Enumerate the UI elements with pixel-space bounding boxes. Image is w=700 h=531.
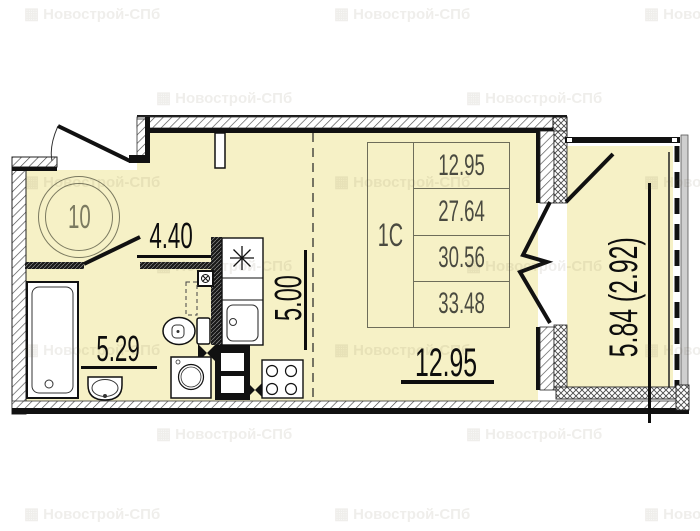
wall-stub [215,133,225,168]
balcony-area-label: 5.84 (2.92) [605,159,645,435]
floorplan-drawing [0,0,700,531]
unit-number-circle: 10 [38,176,120,258]
unit-area-values: 12.95 27.64 30.56 33.48 [414,143,509,327]
unit-type-cell: 1С [368,143,414,327]
unit-type-label: 1С [378,217,403,254]
area-value: 30.56 [438,241,485,275]
floorplan-page: 10 1С 12.95 27.64 30.56 33.48 4.40 5.29 … [0,0,700,531]
kitchen-area-label: 5.00 [272,253,306,343]
area-value: 27.64 [438,195,485,229]
table-row: 33.48 [414,282,509,327]
balcony-area-underline [648,183,651,423]
living-room-area-underline [401,380,494,384]
hallway-area-underline [137,255,211,258]
table-row: 27.64 [414,189,509,235]
bathroom-area-label: 5.29 [78,332,158,366]
washing-machine [171,357,211,398]
fridge-asterisk-icon [230,246,254,270]
living-room-area-label: 12.95 [396,344,496,382]
bathtub [27,282,78,398]
table-row: 12.95 [414,143,509,189]
hallway-area-label: 4.40 [133,219,209,253]
unit-number-inner-circle: 10 [45,183,113,251]
bathroom-sink [88,377,122,400]
bathroom-area-underline [81,366,157,369]
area-value: 12.95 [438,149,485,183]
table-row: 30.56 [414,236,509,282]
entry-door-leaf [58,126,130,161]
area-value: 33.48 [438,287,485,321]
unit-number: 10 [68,198,91,236]
entry-door-arc [51,126,58,161]
stove [262,360,303,398]
kitchen-area-underline [304,250,307,350]
kitchen-counter [222,238,263,345]
toilet [163,318,210,345]
unit-area-table: 1С 12.95 27.64 30.56 33.48 [367,142,510,328]
